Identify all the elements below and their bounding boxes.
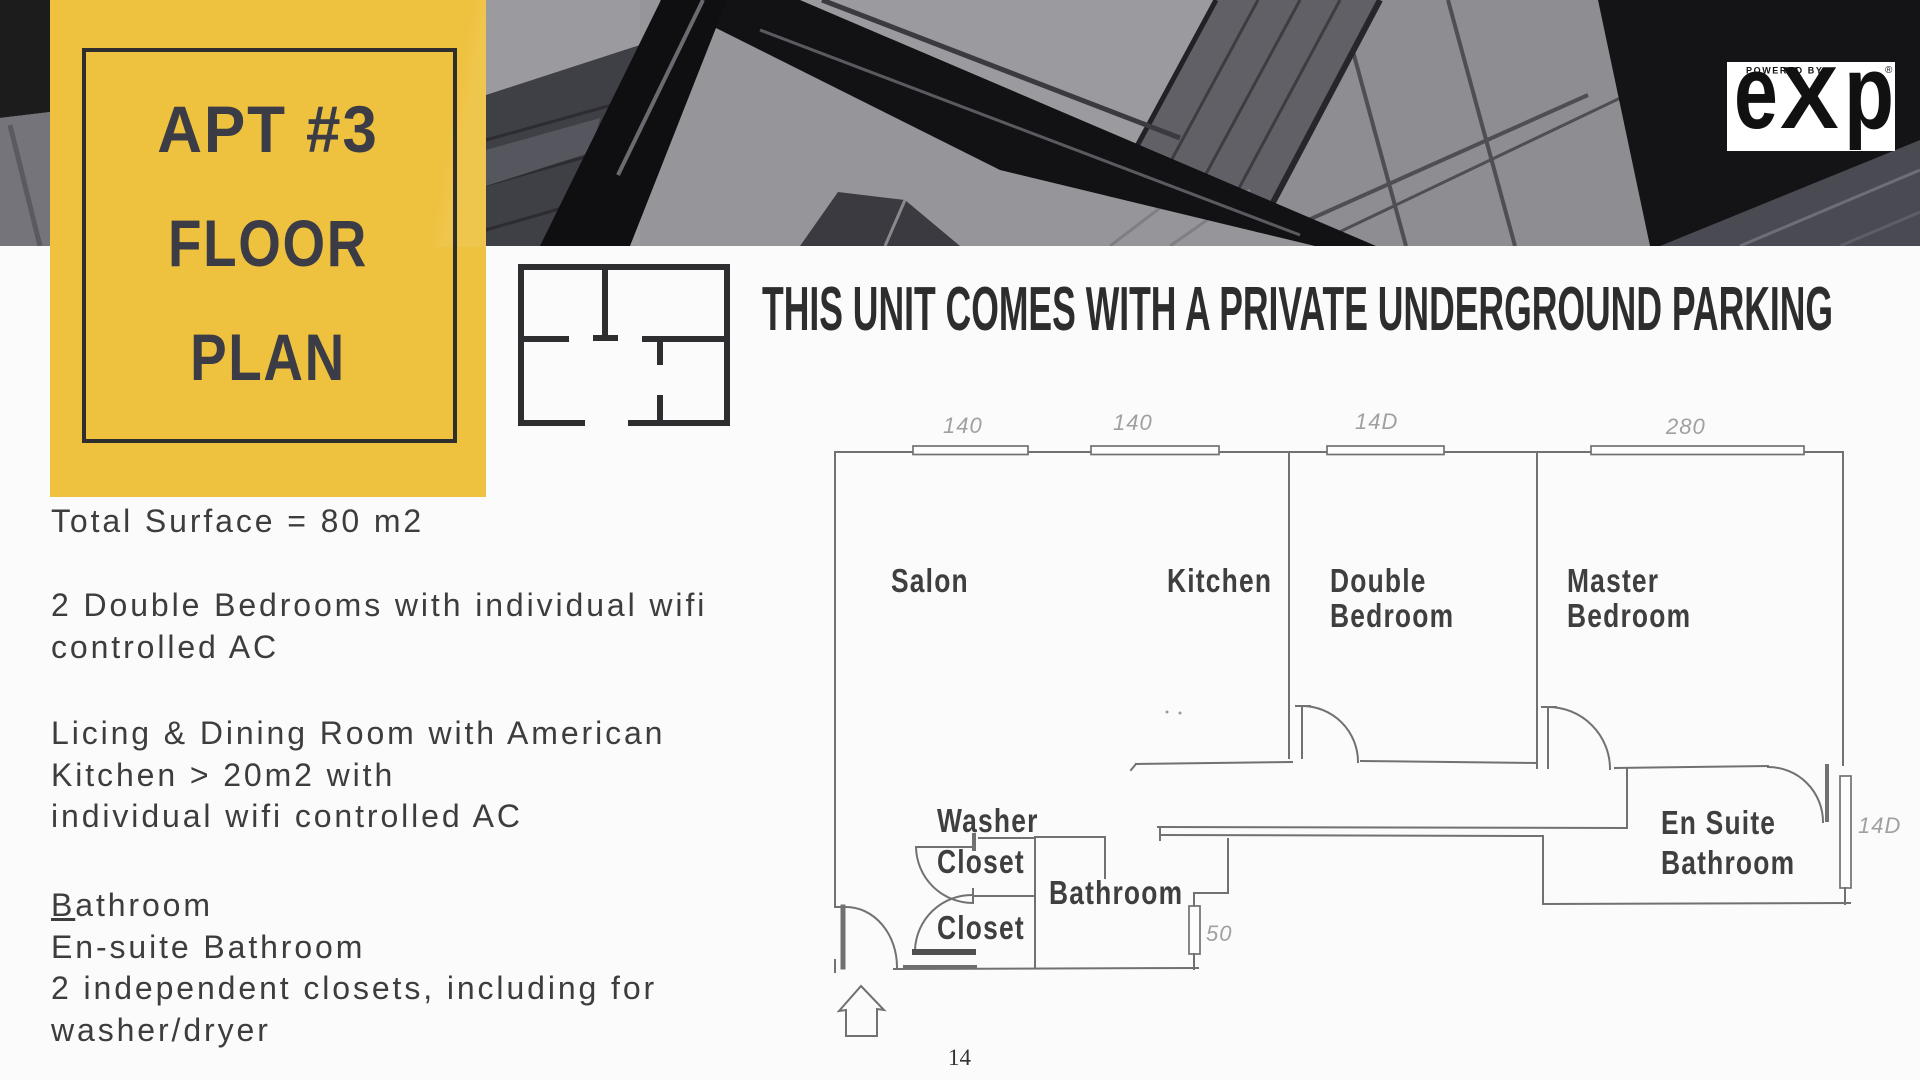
- svg-text:Bedroom: Bedroom: [1567, 598, 1691, 634]
- svg-text:®: ®: [1885, 65, 1893, 76]
- svg-text:280: 280: [1665, 414, 1706, 439]
- svg-text:Bedroom: Bedroom: [1330, 598, 1454, 634]
- svg-text:X: X: [1780, 62, 1839, 147]
- svg-text:En Suite: En Suite: [1661, 805, 1776, 841]
- svg-text:Closet: Closet: [937, 910, 1025, 946]
- svg-text:140: 140: [943, 413, 983, 438]
- svg-text:e: e: [1734, 62, 1778, 151]
- svg-text:14D: 14D: [1355, 409, 1398, 434]
- svg-text:140: 140: [1113, 410, 1153, 435]
- svg-text:Bathroom: Bathroom: [1661, 845, 1795, 881]
- svg-text:Bathroom: Bathroom: [1049, 875, 1183, 911]
- svg-text:14D: 14D: [1858, 813, 1901, 838]
- svg-text:Master: Master: [1567, 563, 1659, 599]
- svg-text:Double: Double: [1330, 563, 1427, 599]
- svg-text:Closet: Closet: [937, 844, 1025, 880]
- svg-text:Kitchen: Kitchen: [1167, 563, 1272, 599]
- svg-text:50: 50: [1206, 921, 1232, 946]
- svg-text:Washer: Washer: [937, 803, 1039, 839]
- svg-text:14: 14: [948, 1045, 972, 1070]
- svg-text:Salon: Salon: [891, 563, 969, 599]
